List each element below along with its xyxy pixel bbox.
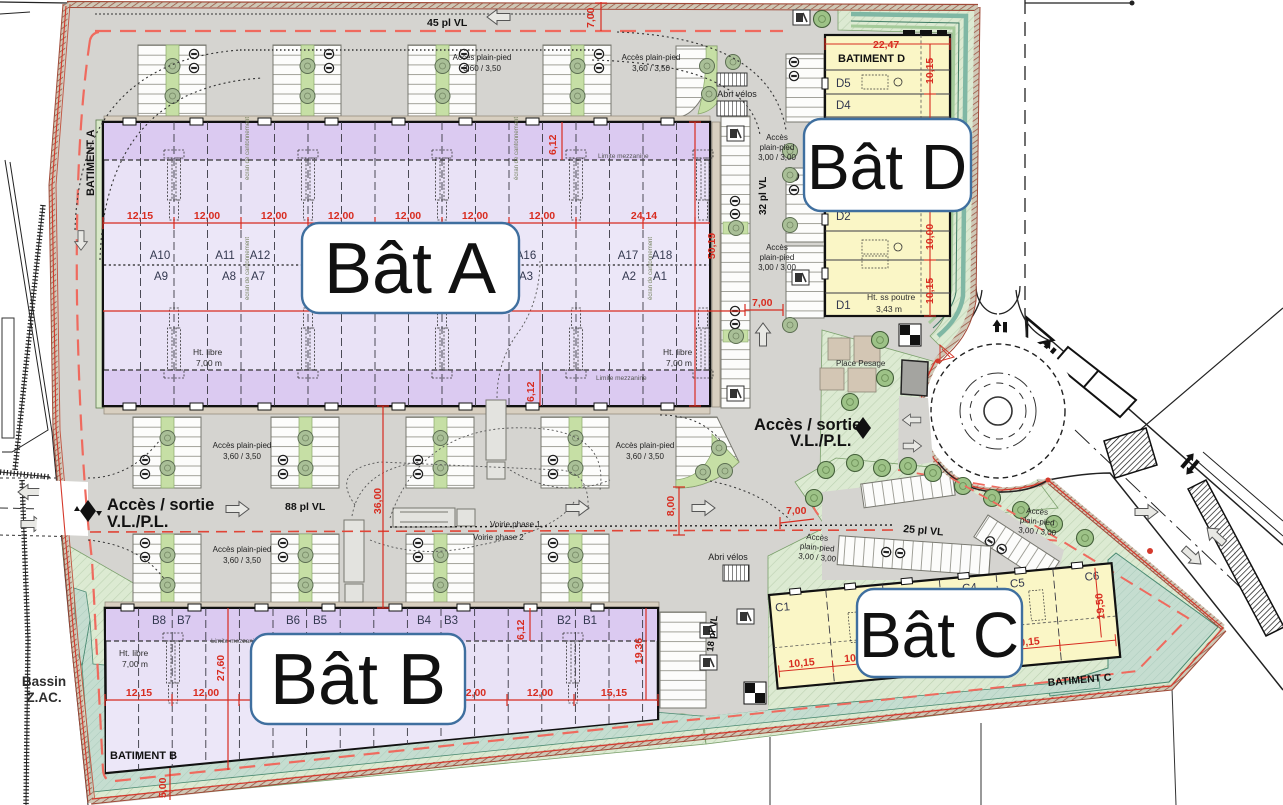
svg-text:Bassin: Bassin: [22, 674, 66, 689]
svg-text:3,60 / 3,50: 3,60 / 3,50: [463, 64, 501, 73]
svg-text:12,00: 12,00: [529, 210, 555, 222]
svg-text:A17: A17: [618, 250, 638, 262]
svg-text:12,15: 12,15: [127, 210, 153, 222]
svg-text:Accès: Accès: [766, 133, 788, 142]
svg-text:Limite mezzanine: Limite mezzanine: [598, 153, 649, 160]
svg-text:écran de cantonnement: écran de cantonnement: [245, 117, 251, 180]
svg-text:36,00: 36,00: [372, 488, 384, 514]
svg-text:B6: B6: [286, 615, 300, 627]
svg-text:D5: D5: [836, 78, 851, 90]
svg-text:A11: A11: [215, 250, 235, 262]
svg-text:Ht. libre: Ht. libre: [119, 648, 149, 658]
svg-text:Abri vélos: Abri vélos: [708, 552, 748, 562]
svg-text:88 pl VL: 88 pl VL: [285, 501, 326, 513]
svg-text:Bât A: Bât A: [324, 229, 496, 309]
svg-text:A7: A7: [251, 271, 265, 283]
svg-text:7,00 m: 7,00 m: [196, 358, 222, 368]
svg-text:A3: A3: [519, 271, 533, 283]
svg-text:27,60: 27,60: [215, 655, 227, 681]
svg-text:Limite mezzanine: Limite mezzanine: [596, 375, 647, 382]
svg-text:7,00: 7,00: [752, 297, 773, 309]
svg-text:Voirie phase 1: Voirie phase 1: [490, 520, 541, 529]
svg-text:Accès plain-pied: Accès plain-pied: [213, 545, 272, 554]
svg-text:6,12: 6,12: [515, 619, 527, 640]
svg-text:10,15: 10,15: [924, 58, 936, 84]
svg-text:Z.AC.: Z.AC.: [26, 690, 61, 705]
svg-text:écran de cantonnement: écran de cantonnement: [245, 237, 251, 300]
svg-text:A10: A10: [150, 250, 170, 262]
svg-text:A18: A18: [652, 250, 672, 262]
svg-text:12,00: 12,00: [194, 210, 220, 222]
svg-text:Accès: Accès: [766, 243, 788, 252]
svg-text:B1: B1: [583, 615, 597, 627]
svg-text:écran de cantonnement: écran de cantonnement: [648, 237, 654, 300]
svg-text:Accès: Accès: [806, 532, 828, 543]
svg-text:Bât C: Bât C: [859, 599, 1019, 671]
svg-text:Accès plain-pied: Accès plain-pied: [453, 53, 512, 62]
svg-text:3,60 / 3,50: 3,60 / 3,50: [626, 452, 664, 461]
svg-text:Accès plain-pied: Accès plain-pied: [213, 441, 272, 450]
svg-text:V.L./P.L.: V.L./P.L.: [107, 513, 168, 531]
svg-text:12,00: 12,00: [193, 687, 219, 699]
svg-text:B2: B2: [557, 615, 571, 627]
svg-text:6,12: 6,12: [525, 381, 537, 402]
svg-text:Bât B: Bât B: [270, 640, 446, 720]
svg-text:Ht. libre: Ht. libre: [193, 347, 223, 357]
svg-text:3,60 / 3,50: 3,60 / 3,50: [632, 64, 670, 73]
svg-text:C1: C1: [775, 601, 791, 614]
svg-text:10,15: 10,15: [788, 656, 815, 670]
svg-text:A8: A8: [222, 271, 236, 283]
svg-text:Place Pesage: Place Pesage: [836, 359, 886, 368]
svg-text:24,14: 24,14: [631, 210, 657, 222]
svg-text:BATIMENT D: BATIMENT D: [838, 53, 905, 65]
svg-text:3,60 / 3,50: 3,60 / 3,50: [223, 452, 261, 461]
svg-text:B5: B5: [313, 615, 327, 627]
svg-text:7,00: 7,00: [585, 7, 597, 28]
svg-text:22,47: 22,47: [873, 39, 899, 51]
svg-text:A12: A12: [250, 250, 270, 262]
svg-text:Accès / sortie: Accès / sortie: [107, 496, 214, 514]
svg-text:Ht. libre: Ht. libre: [663, 347, 693, 357]
svg-text:B7: B7: [177, 615, 191, 627]
svg-text:Abri vélos: Abri vélos: [717, 89, 757, 99]
svg-text:V.L./P.L.: V.L./P.L.: [790, 432, 851, 450]
svg-text:3,43 m: 3,43 m: [876, 304, 902, 314]
svg-text:32 pl VL: 32 pl VL: [758, 177, 769, 215]
svg-text:Accès plain-pied: Accès plain-pied: [622, 53, 681, 62]
svg-text:C6: C6: [1084, 570, 1100, 583]
svg-text:A1: A1: [653, 271, 667, 283]
svg-text:3,00 / 3,00: 3,00 / 3,00: [758, 263, 796, 272]
svg-text:10,15: 10,15: [924, 278, 936, 304]
svg-text:Accès plain-pied: Accès plain-pied: [616, 441, 675, 450]
svg-text:BATIMENT B: BATIMENT B: [110, 750, 177, 762]
svg-text:C5: C5: [1010, 577, 1026, 590]
svg-text:écran de cantonnement: écran de cantonnement: [514, 117, 520, 180]
svg-text:12,00: 12,00: [462, 210, 488, 222]
svg-text:50,19: 50,19: [706, 233, 718, 259]
svg-text:B8: B8: [152, 615, 166, 627]
svg-text:3,00 / 3,00: 3,00 / 3,00: [758, 153, 796, 162]
svg-text:19,50: 19,50: [1093, 592, 1107, 619]
svg-text:5,00: 5,00: [157, 777, 169, 798]
svg-text:19,36: 19,36: [633, 638, 645, 664]
svg-text:plain-pied: plain-pied: [760, 143, 795, 152]
svg-text:12,00: 12,00: [395, 210, 421, 222]
svg-text:12,15: 12,15: [126, 687, 152, 699]
svg-text:Voirie phase 2: Voirie phase 2: [473, 533, 524, 542]
svg-text:D1: D1: [836, 300, 851, 312]
svg-text:B3: B3: [444, 615, 458, 627]
svg-text:A9: A9: [154, 271, 168, 283]
svg-text:6,12: 6,12: [547, 134, 559, 155]
svg-text:7,00 m: 7,00 m: [666, 358, 692, 368]
svg-text:7,00 m: 7,00 m: [122, 659, 148, 669]
svg-text:3,60 / 3,50: 3,60 / 3,50: [223, 556, 261, 565]
svg-text:10,00: 10,00: [924, 224, 936, 250]
svg-text:8,00: 8,00: [665, 496, 677, 517]
svg-text:A2: A2: [622, 271, 636, 283]
svg-text:plain-pied: plain-pied: [760, 253, 795, 262]
svg-text:12,00: 12,00: [527, 687, 553, 699]
svg-text:D2: D2: [836, 211, 851, 223]
svg-text:Ht. ss poutre: Ht. ss poutre: [867, 292, 915, 302]
svg-text:45 pl VL: 45 pl VL: [427, 17, 468, 29]
svg-text:Bât D: Bât D: [807, 131, 967, 203]
svg-text:Accès: Accès: [1026, 506, 1048, 517]
svg-text:15,15: 15,15: [601, 687, 627, 699]
svg-text:7,00: 7,00: [786, 505, 807, 517]
svg-text:12,00: 12,00: [261, 210, 287, 222]
svg-text:D4: D4: [836, 100, 851, 112]
svg-text:12,00: 12,00: [328, 210, 354, 222]
svg-text:B4: B4: [417, 615, 432, 627]
svg-text:BATIMENT A: BATIMENT A: [85, 129, 97, 196]
